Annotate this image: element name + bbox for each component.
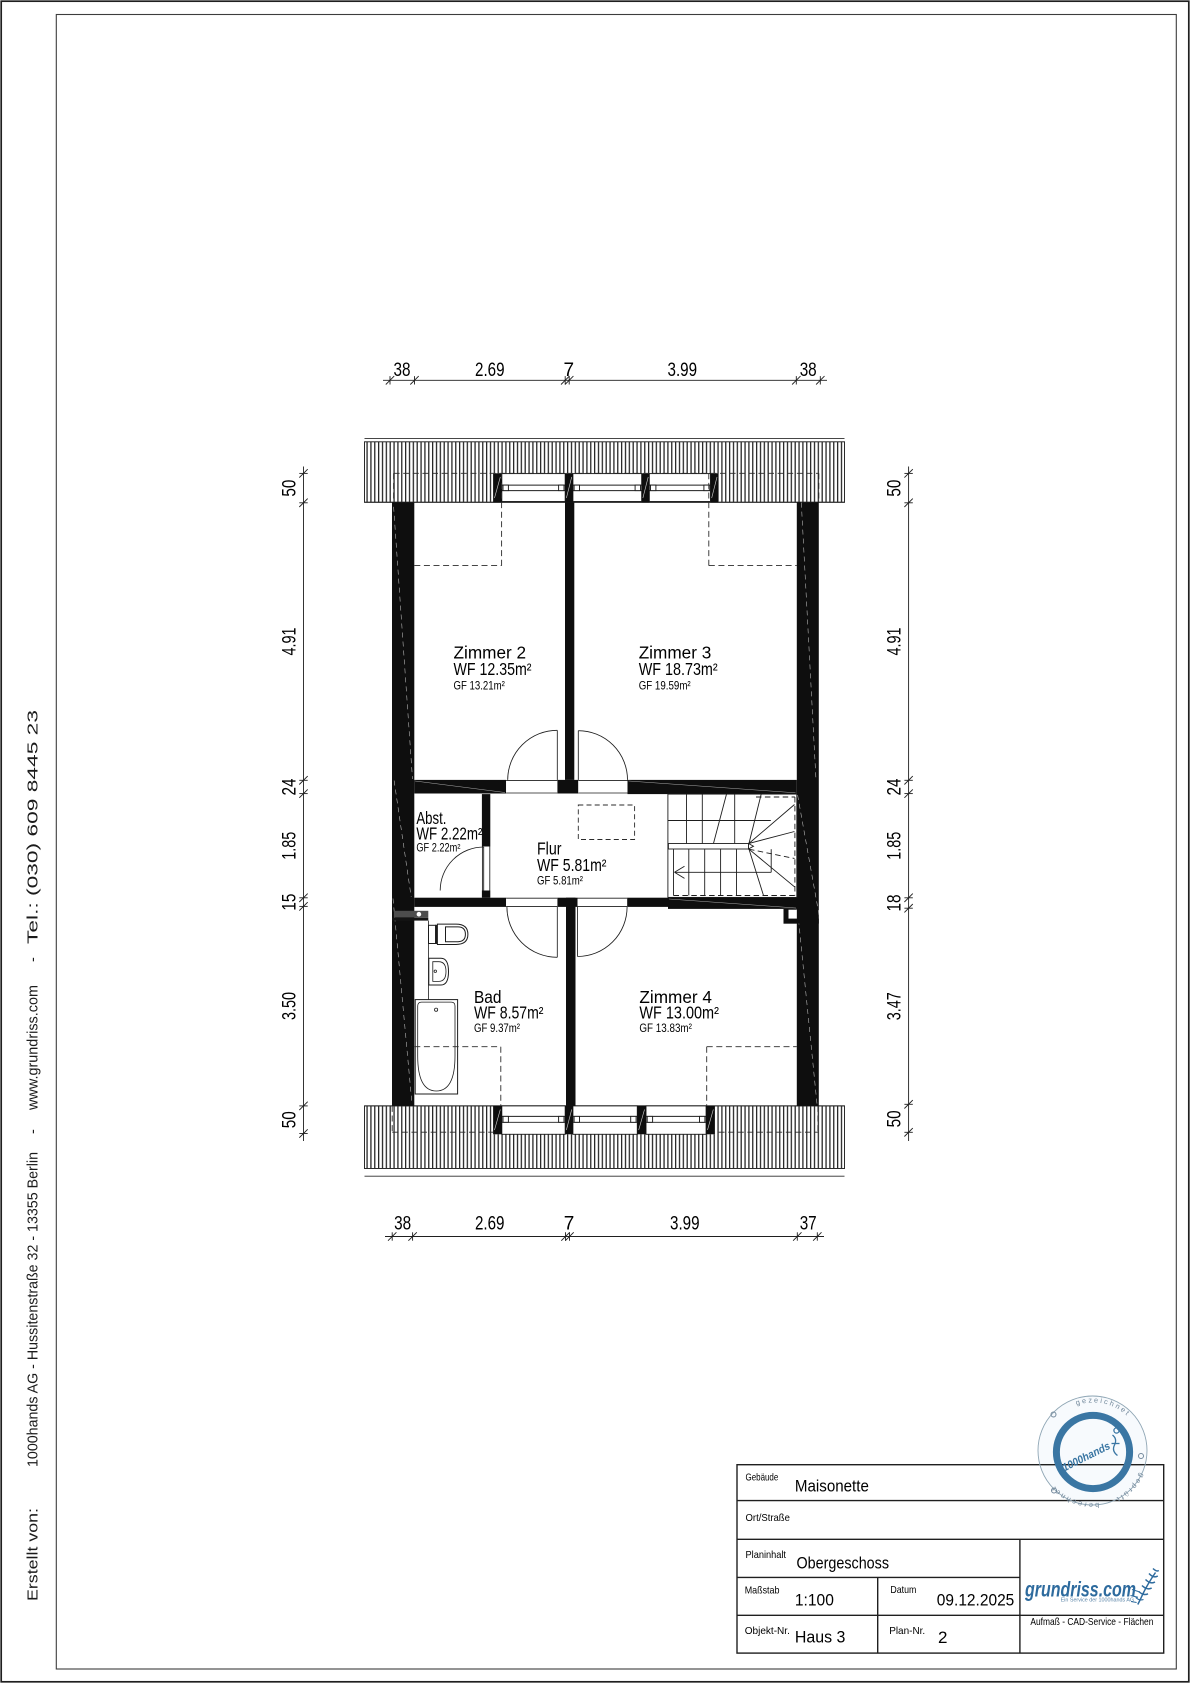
- svg-text:7: 7: [564, 360, 575, 381]
- svg-text:1.85: 1.85: [280, 832, 301, 860]
- svg-text:Ein Service der 1000hands AG: Ein Service der 1000hands AG: [1061, 1598, 1135, 1604]
- svg-text:24: 24: [280, 778, 301, 795]
- svg-text:1000hands AG - Hussitenstraße: 1000hands AG - Hussitenstraße 32 - 13355…: [26, 1152, 42, 1467]
- svg-text:Datum: Datum: [890, 1585, 916, 1596]
- svg-text:GF 13.83m²: GF 13.83m²: [639, 1021, 692, 1035]
- svg-text:WF 12.35m²: WF 12.35m²: [454, 659, 532, 679]
- svg-text:GF 13.21m²: GF 13.21m²: [454, 678, 505, 692]
- svg-text:Aufmaß - CAD-Service - Flächen: Aufmaß - CAD-Service - Flächen: [1030, 1616, 1153, 1628]
- svg-text:50: 50: [885, 1110, 906, 1127]
- svg-text:24: 24: [885, 778, 906, 795]
- svg-text:Ort/Straße: Ort/Straße: [746, 1513, 791, 1524]
- svg-text:38: 38: [394, 1214, 411, 1235]
- svg-text:50: 50: [885, 480, 906, 497]
- svg-text:Maßstab: Maßstab: [745, 1586, 780, 1597]
- svg-text:2.69: 2.69: [475, 1214, 505, 1235]
- svg-text:WF 18.73m²: WF 18.73m²: [639, 659, 718, 679]
- svg-text:1.85: 1.85: [885, 832, 906, 860]
- svg-text:Plan-Nr.: Plan-Nr.: [889, 1626, 925, 1637]
- svg-text:37: 37: [800, 1214, 817, 1235]
- svg-text:50: 50: [280, 1111, 301, 1128]
- svg-text:GF 2.22m²: GF 2.22m²: [416, 843, 460, 855]
- svg-text:3.99: 3.99: [670, 1214, 700, 1235]
- svg-text:3.47: 3.47: [885, 992, 906, 1020]
- svg-text:2.69: 2.69: [475, 360, 505, 381]
- svg-text:1:100: 1:100: [795, 1591, 834, 1610]
- svg-text:WF 2.22m²: WF 2.22m²: [416, 824, 482, 844]
- svg-text:15: 15: [280, 894, 301, 911]
- svg-text:Gebäude: Gebäude: [746, 1473, 779, 1484]
- svg-text:Objekt-Nr.: Objekt-Nr.: [745, 1626, 790, 1637]
- svg-text:Tel.: (030) 609 8445 23: Tel.: (030) 609 8445 23: [26, 710, 42, 944]
- svg-text:WF 13.00m²: WF 13.00m²: [639, 1003, 719, 1023]
- svg-text:38: 38: [394, 360, 411, 381]
- svg-text:3.50: 3.50: [280, 992, 301, 1020]
- svg-text:WF 8.57m²: WF 8.57m²: [474, 1003, 544, 1023]
- svg-text:50: 50: [280, 480, 301, 497]
- svg-text:4.91: 4.91: [280, 628, 301, 656]
- svg-text:Maisonette: Maisonette: [795, 1477, 869, 1496]
- svg-text:7: 7: [564, 1214, 575, 1235]
- svg-text:3.99: 3.99: [668, 360, 698, 381]
- svg-text:GF 9.37m²: GF 9.37m²: [474, 1021, 520, 1035]
- svg-text:WF 5.81m²: WF 5.81m²: [537, 855, 607, 875]
- svg-text:2: 2: [938, 1628, 947, 1647]
- svg-text:Haus 3: Haus 3: [795, 1627, 846, 1646]
- svg-text:4.91: 4.91: [885, 628, 906, 656]
- svg-text:Planinhalt: Planinhalt: [746, 1550, 787, 1561]
- svg-text:-: -: [26, 1129, 42, 1134]
- svg-text:18: 18: [885, 895, 906, 912]
- svg-text:38: 38: [800, 360, 817, 381]
- svg-text:Erstellt von:: Erstellt von:: [26, 1508, 42, 1601]
- svg-text:-: -: [26, 957, 42, 962]
- svg-text:GF 5.81m²: GF 5.81m²: [537, 874, 583, 888]
- svg-text:www.grundriss.com: www.grundriss.com: [26, 985, 42, 1111]
- svg-text:GF 19.59m²: GF 19.59m²: [639, 678, 691, 692]
- svg-text:Obergeschoss: Obergeschoss: [797, 1554, 890, 1573]
- svg-text:09.12.2025: 09.12.2025: [937, 1591, 1015, 1610]
